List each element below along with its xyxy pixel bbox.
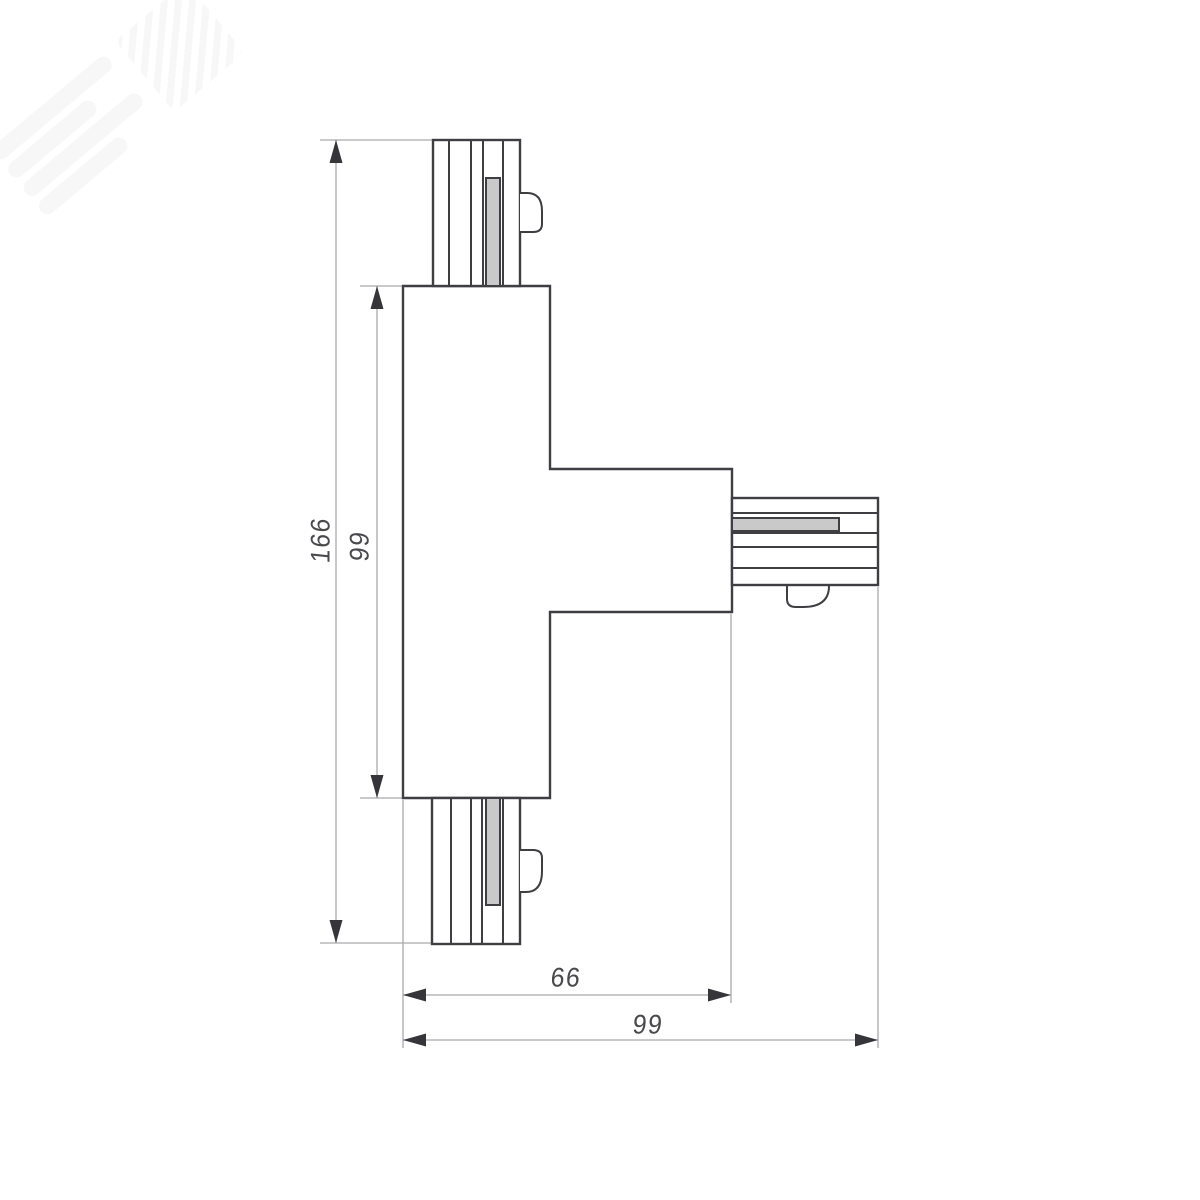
connector-body-outline xyxy=(403,286,732,798)
dim-label-total-width: 99 xyxy=(631,1010,665,1041)
bottom-latch-tab xyxy=(520,850,542,892)
bottom-track-profile xyxy=(432,798,520,944)
right-track-profile xyxy=(732,498,878,585)
arrow-down-icon xyxy=(371,775,384,798)
drawing-canvas: 166 99 66 99 xyxy=(0,0,1200,1200)
right-latch-tab xyxy=(787,586,829,607)
bottom-contact-strip xyxy=(486,798,500,905)
arrow-right-icon xyxy=(708,989,731,1002)
arrow-up-icon xyxy=(330,140,343,163)
top-contact-strip xyxy=(486,178,500,286)
right-track-port xyxy=(732,498,878,607)
bottom-track-port xyxy=(432,798,542,944)
right-contact-strip xyxy=(732,518,839,531)
connector-technical-drawing xyxy=(0,0,1200,1200)
arrow-right-icon xyxy=(855,1034,878,1047)
top-latch-tab xyxy=(520,193,542,232)
dim-label-total-height: 166 xyxy=(306,516,337,565)
top-track-profile xyxy=(433,140,520,286)
dim-label-body-height: 99 xyxy=(345,529,376,563)
arrow-up-icon xyxy=(371,286,384,309)
arrow-down-icon xyxy=(330,920,343,943)
top-track-port xyxy=(433,140,542,286)
arrow-left-icon xyxy=(403,989,426,1002)
dim-label-body-width: 66 xyxy=(549,963,583,994)
arrow-left-icon xyxy=(403,1034,426,1047)
